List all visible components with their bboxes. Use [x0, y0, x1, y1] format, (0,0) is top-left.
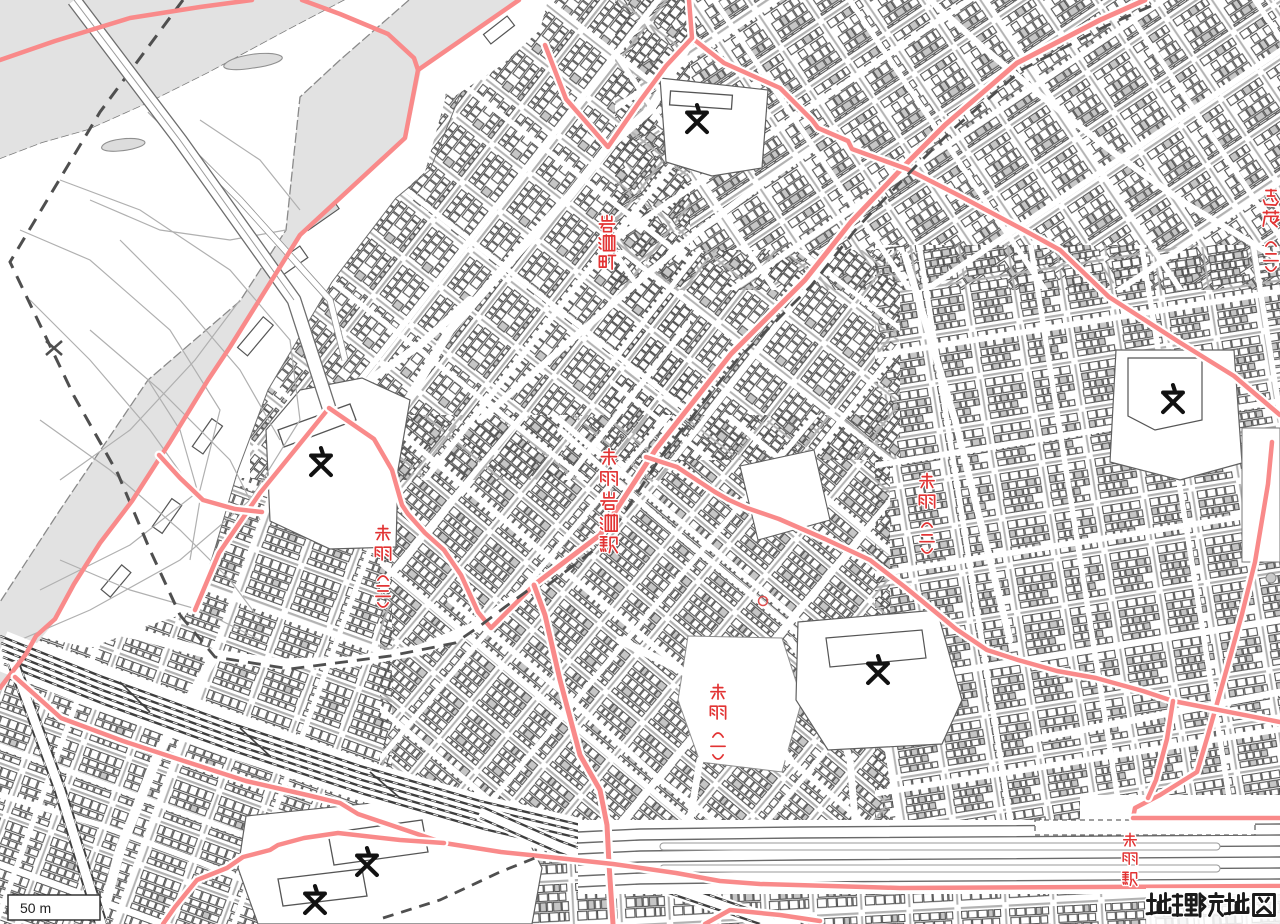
- svg-text:50 m: 50 m: [20, 900, 51, 916]
